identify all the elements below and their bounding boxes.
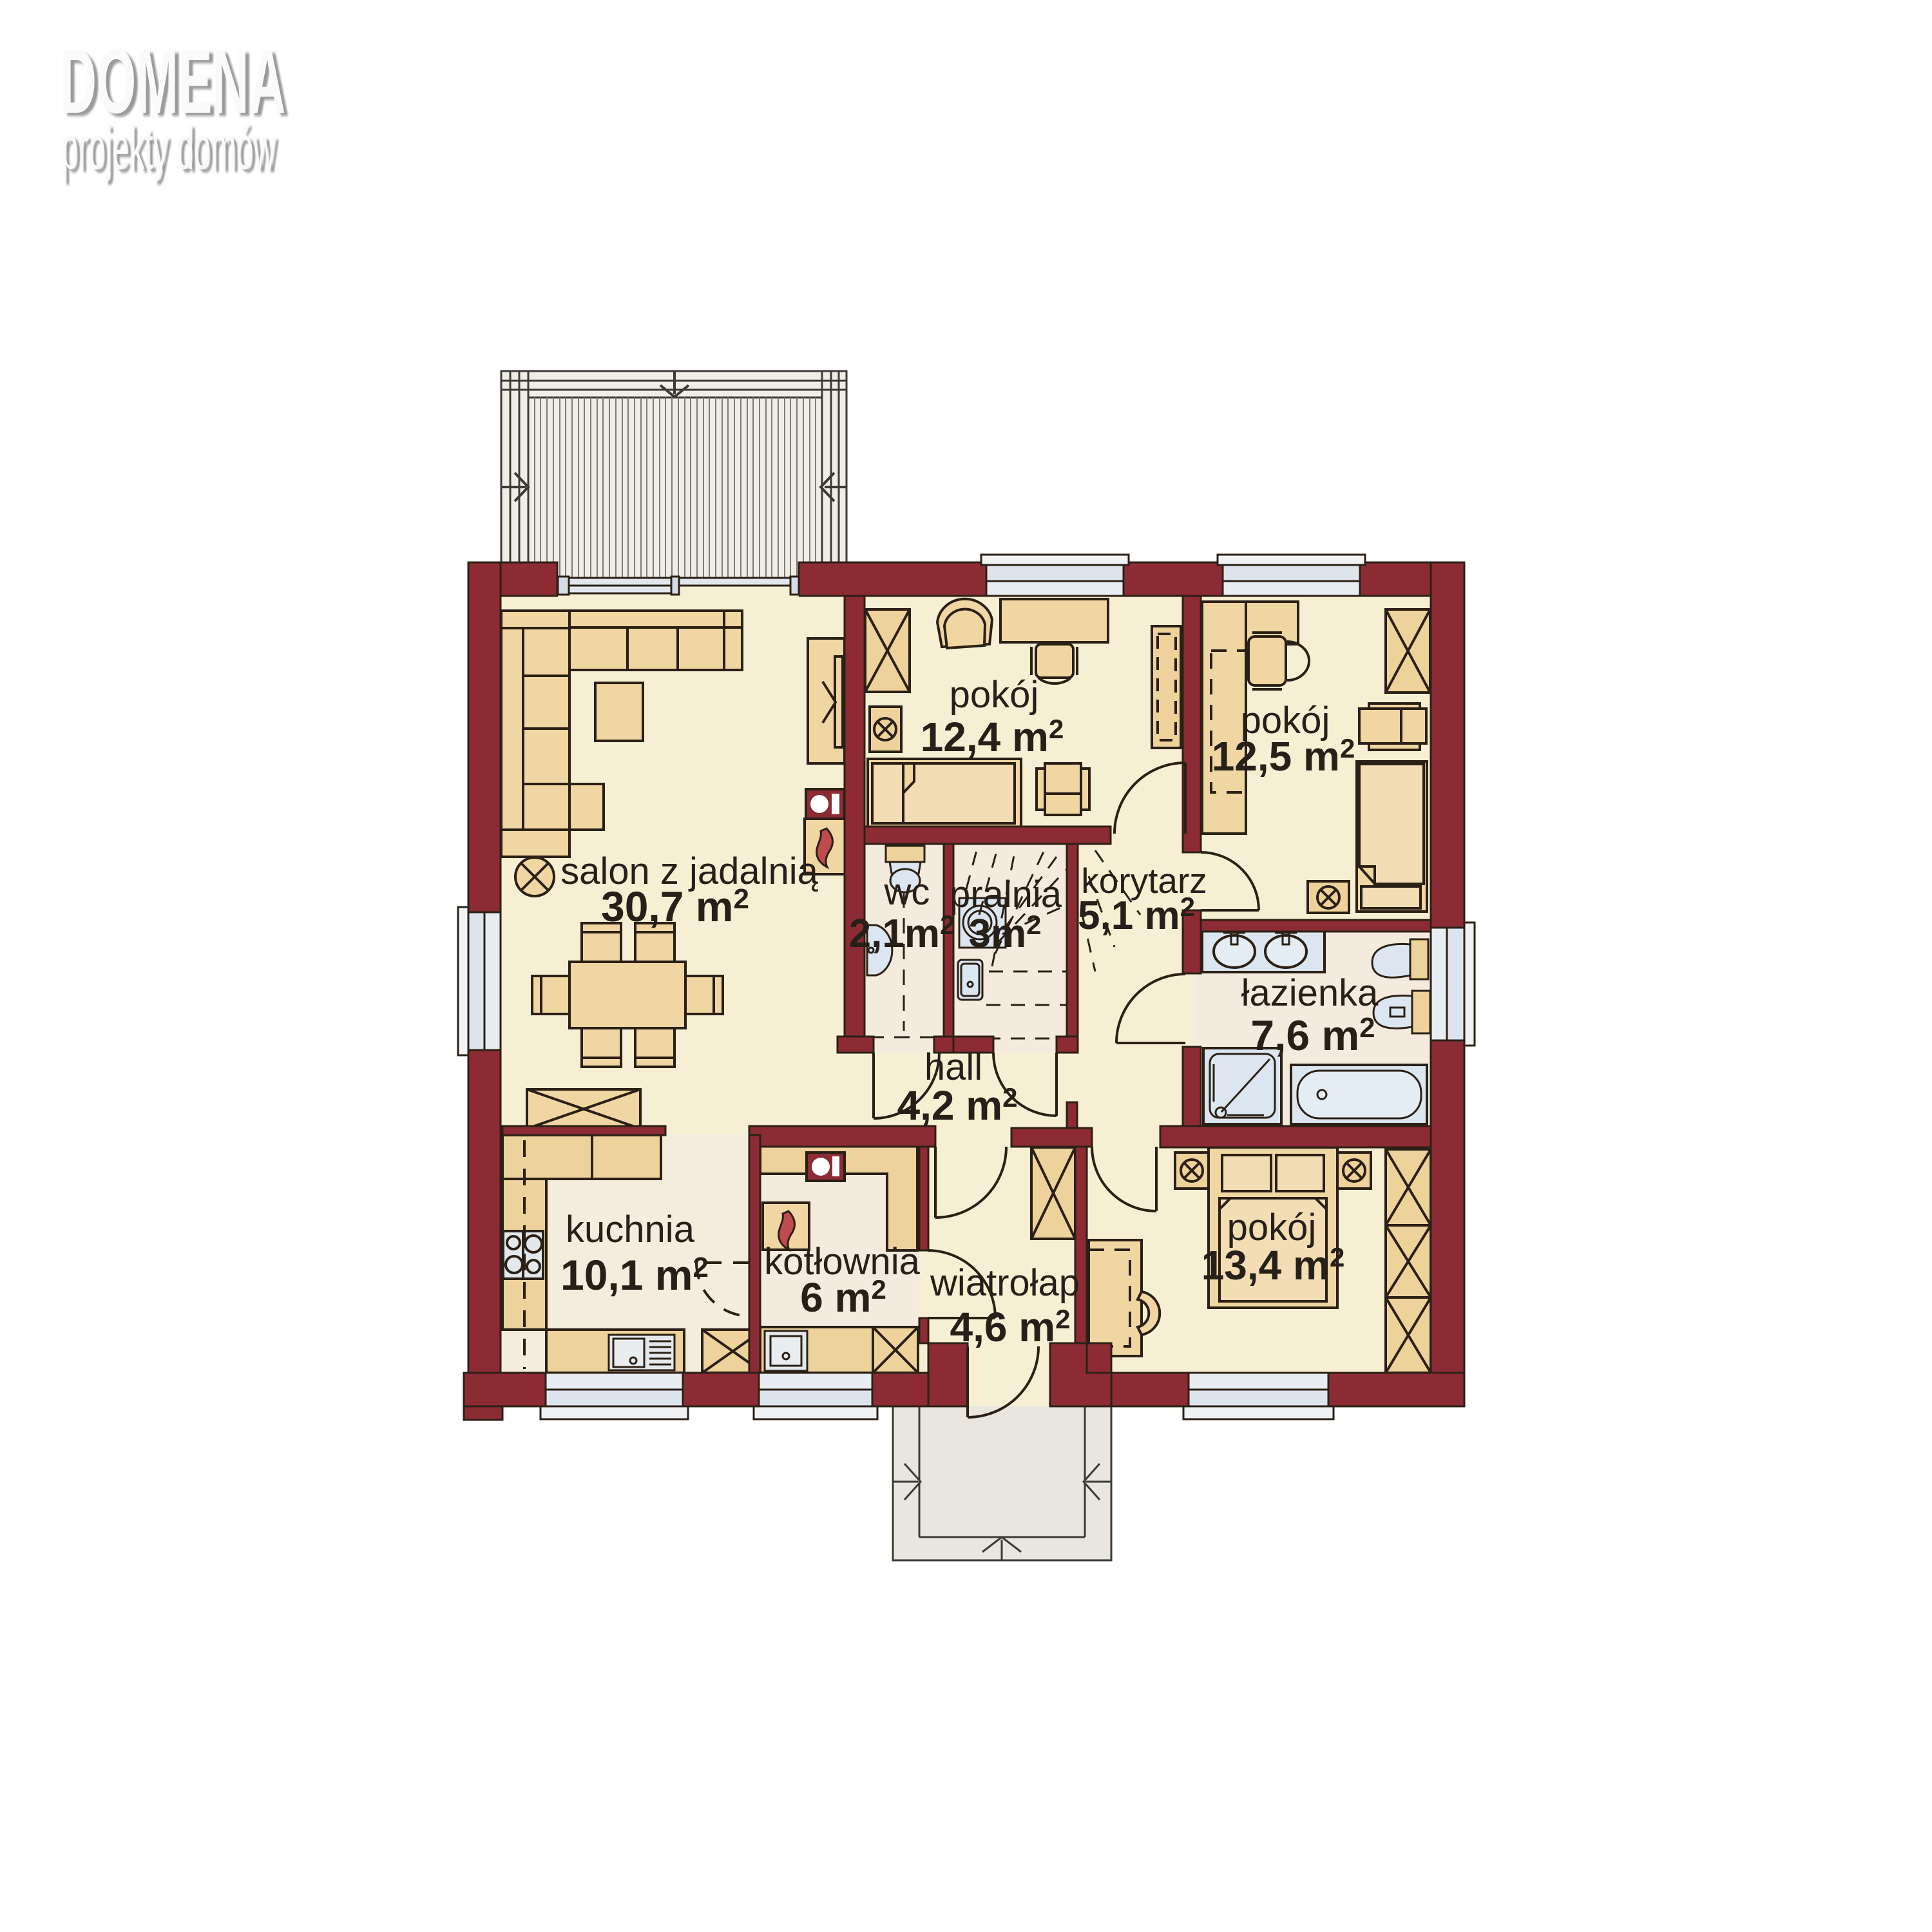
svg-text:kuchnia: kuchnia (566, 1209, 695, 1250)
svg-text:2,1m2: 2,1m2 (849, 910, 955, 956)
svg-text:10,1 m2: 10,1 m2 (560, 1251, 709, 1299)
svg-text:pokój: pokój (950, 674, 1039, 716)
svg-text:4,6 m2: 4,6 m2 (950, 1304, 1070, 1350)
svg-text:łazienka: łazienka (1241, 972, 1379, 1014)
svg-text:5,1 m2: 5,1 m2 (1078, 892, 1195, 938)
svg-text:12,5 m2: 12,5 m2 (1212, 733, 1355, 779)
svg-text:7,6 m2: 7,6 m2 (1250, 1011, 1375, 1059)
svg-text:pralnia: pralnia (950, 874, 1062, 915)
svg-text:30,7 m2: 30,7 m2 (601, 883, 749, 930)
svg-text:wc: wc (884, 871, 930, 913)
svg-text:13,4 m2: 13,4 m2 (1201, 1242, 1345, 1288)
svg-text:4,2 m2: 4,2 m2 (897, 1082, 1017, 1129)
svg-text:12,4 m2: 12,4 m2 (921, 714, 1064, 760)
svg-text:wiatrołap: wiatrołap (930, 1262, 1080, 1304)
svg-text:projekty domów: projekty domów (61, 113, 276, 182)
